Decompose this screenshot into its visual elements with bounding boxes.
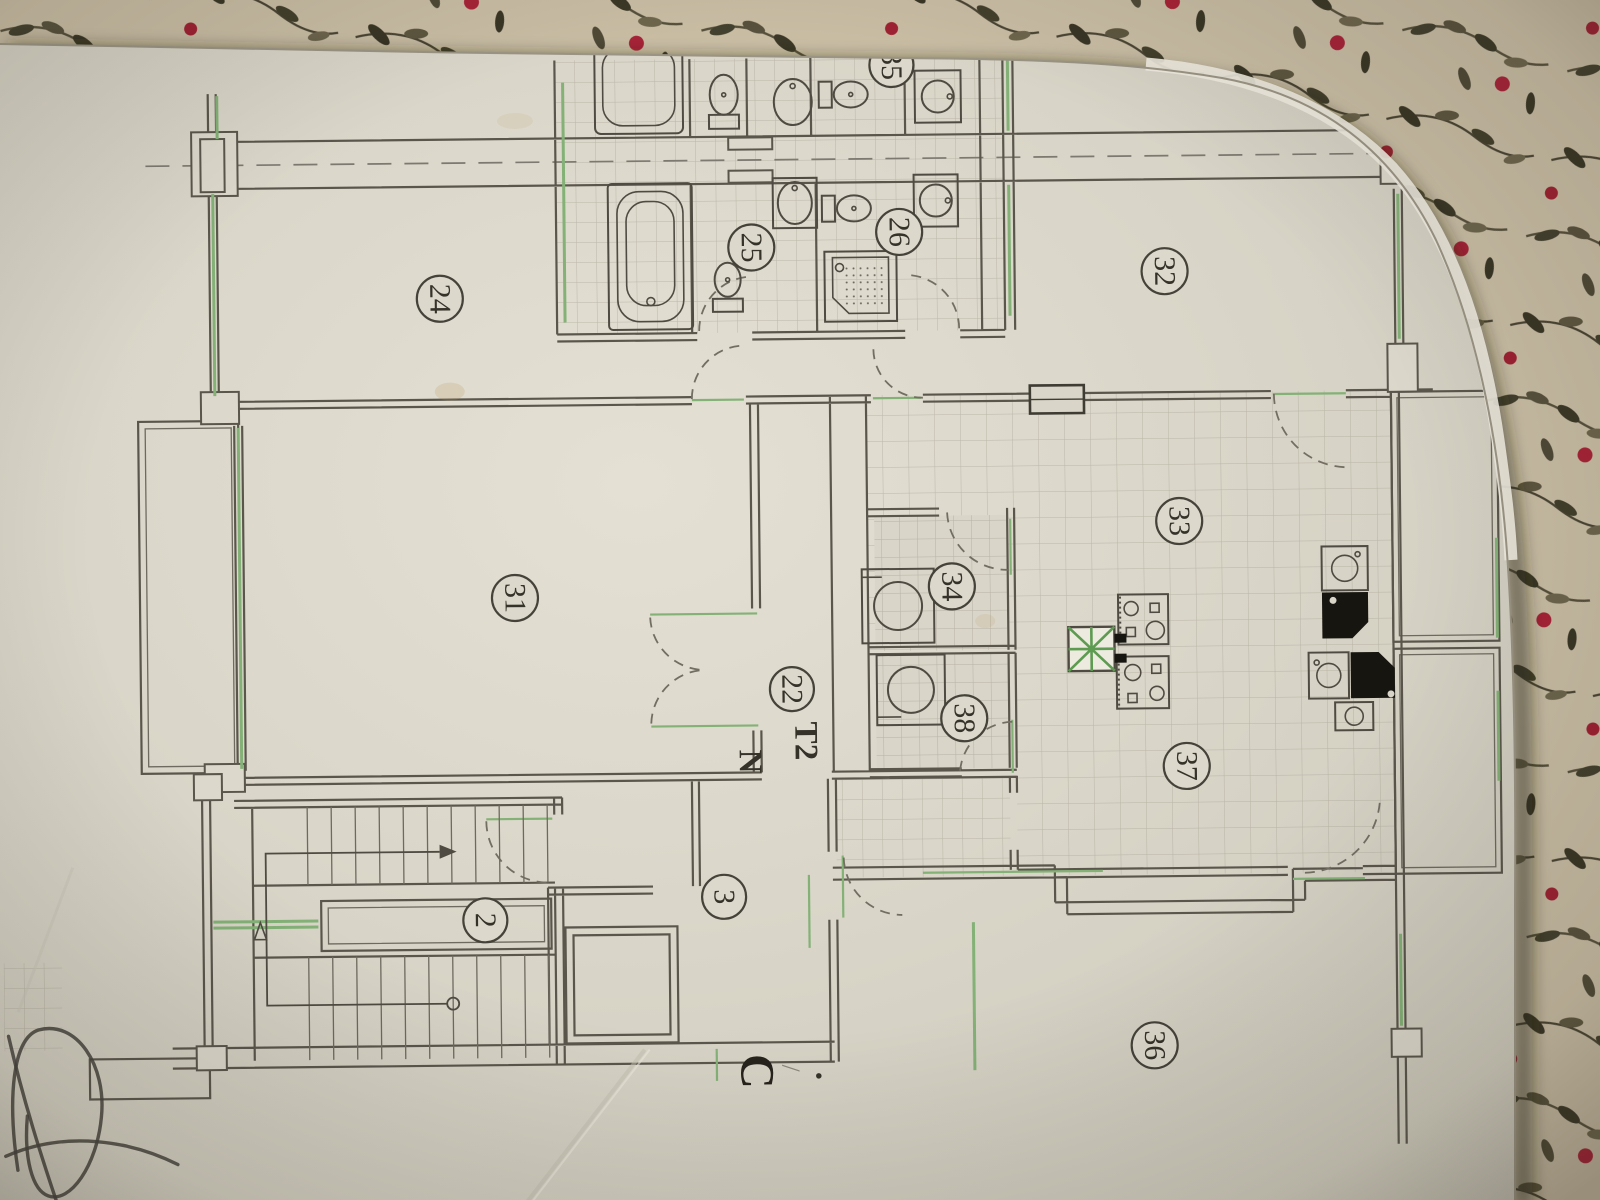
photo-stage: 24 25 26 35 32 31 xyxy=(0,0,1600,1200)
floor-plan-photo: 24 25 26 35 32 31 xyxy=(0,0,1600,1200)
photo-vignette xyxy=(0,0,1600,1200)
